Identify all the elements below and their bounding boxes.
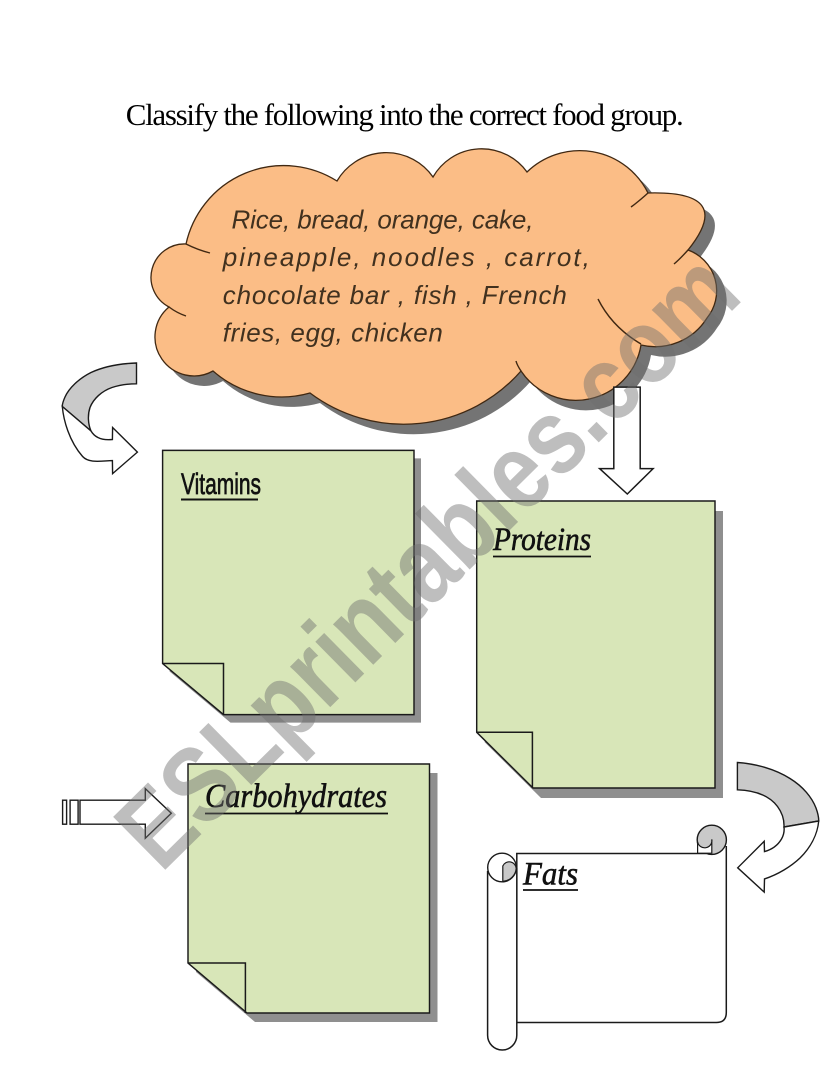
svg-text:chocolate bar , fish , French: chocolate bar , fish , French bbox=[223, 280, 567, 310]
svg-text:fries, egg, chicken: fries, egg, chicken bbox=[223, 318, 443, 348]
svg-text:Rice, bread, orange, cake,: Rice, bread, orange, cake, bbox=[232, 205, 534, 235]
svg-text:Vitamins: Vitamins bbox=[181, 468, 261, 501]
svg-text:Fats: Fats bbox=[522, 857, 578, 893]
svg-text:Classify the following into th: Classify the following into the correct … bbox=[126, 97, 684, 132]
